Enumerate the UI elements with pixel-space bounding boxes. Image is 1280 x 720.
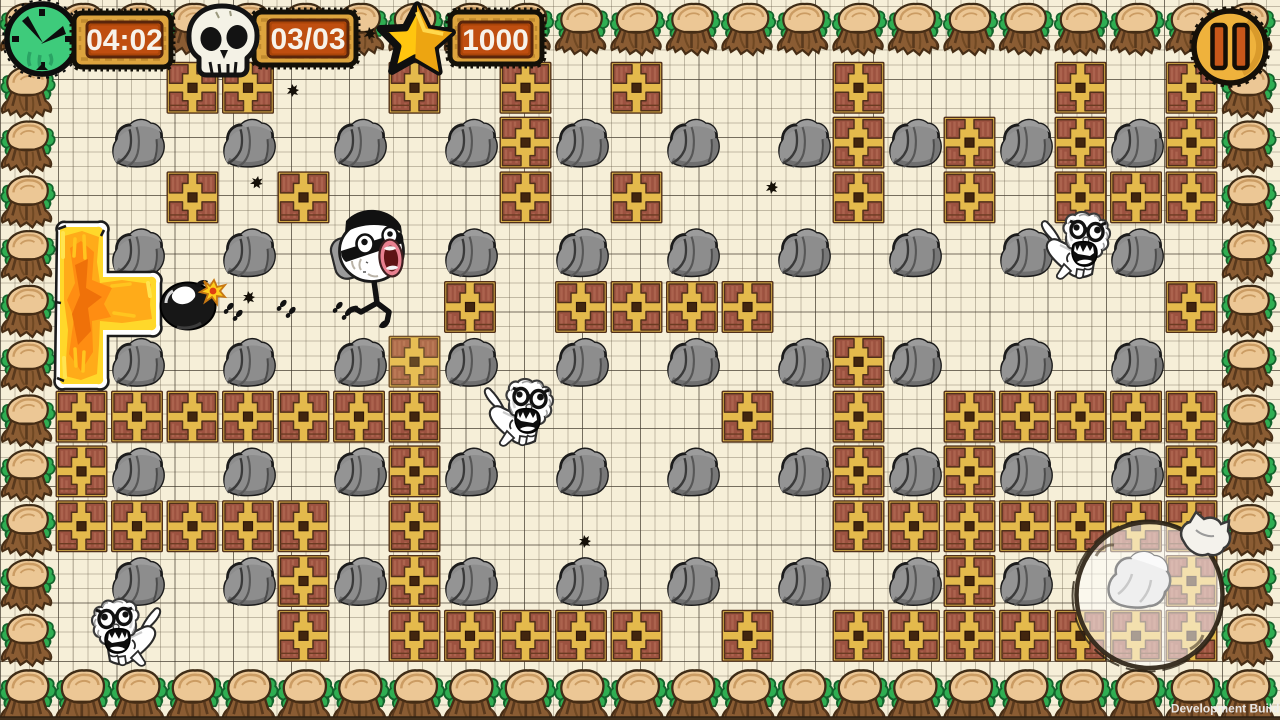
svg-text:04:02: 04:02 (86, 24, 163, 57)
svg-text:Development Build: Development Build (1171, 702, 1280, 716)
svg-text:03/03: 03/03 (270, 23, 345, 56)
svg-text:1000: 1000 (462, 24, 529, 57)
